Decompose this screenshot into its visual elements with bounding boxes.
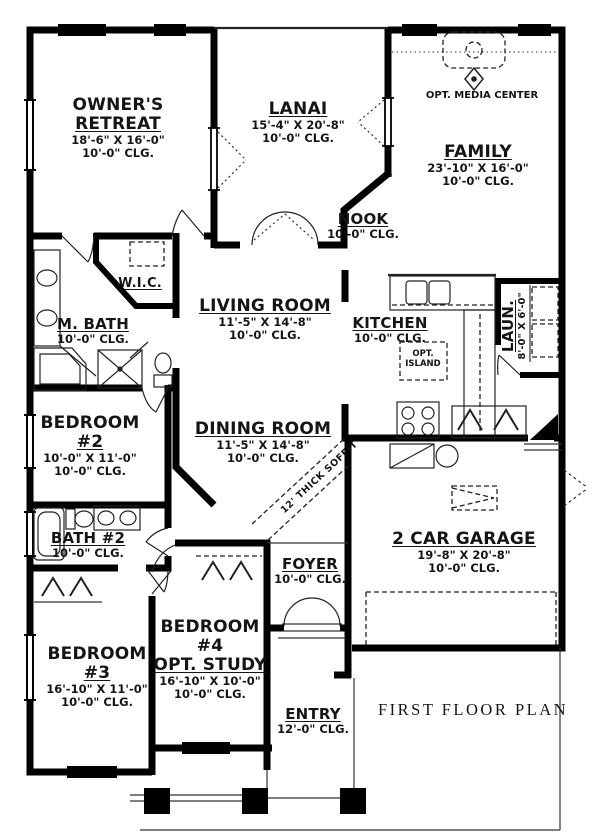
garage-workbench-diagonal bbox=[390, 444, 434, 468]
room-name: 2 CAR GARAGE bbox=[392, 530, 536, 549]
door-bedroom2 bbox=[142, 388, 168, 412]
room-label-lanai: LANAI 15'-4" X 20'-8" 10'-0" CLG. bbox=[251, 100, 344, 145]
opt-media-center-tv bbox=[466, 42, 482, 58]
window-bedroom2-left bbox=[24, 415, 36, 468]
room-ceiling: 10'-0" CLG. bbox=[427, 175, 528, 188]
room-name: OWNER'S bbox=[71, 96, 164, 115]
porch-column-2 bbox=[242, 788, 268, 814]
room-name: KITCHEN bbox=[352, 315, 427, 332]
slider-swing-dotted-owners bbox=[218, 132, 246, 188]
room-name: BEDROOM bbox=[41, 414, 140, 433]
wic-shelf-dashed bbox=[130, 242, 164, 266]
attic-access-box bbox=[452, 486, 497, 510]
room-name: ENTRY bbox=[277, 706, 349, 723]
room-label-m-bath: M. BATH 10'-0" CLG. bbox=[57, 316, 129, 346]
mbath-counter-angle bbox=[60, 346, 96, 376]
room-label-wic: W.I.C. bbox=[118, 277, 162, 292]
stove-burner-4 bbox=[422, 423, 434, 435]
room-ceiling: 10'-0" CLG. bbox=[41, 465, 140, 478]
floor-plan: OWNER'S RETREAT 18'-6" X 16'-0" 10'-0" C… bbox=[0, 0, 600, 838]
door-garage-leaf bbox=[530, 414, 558, 440]
stove-burner-1 bbox=[402, 407, 414, 419]
front-door-sill bbox=[278, 624, 346, 638]
mbath-sink-2 bbox=[37, 310, 57, 326]
room-name: BATH #2 bbox=[51, 530, 125, 547]
room-name: FAMILY bbox=[427, 143, 528, 162]
room-ceiling: 10'-0" CLG. bbox=[51, 547, 125, 560]
slider-family-to-lanai bbox=[382, 98, 394, 146]
bath2-sink-2 bbox=[120, 511, 136, 525]
room-name: NOOK bbox=[327, 211, 399, 228]
door-lanai-double bbox=[252, 212, 318, 245]
room-name: BEDROOM bbox=[46, 645, 147, 664]
room-name: LIVING ROOM bbox=[199, 297, 331, 316]
room-label-bedroom3: BEDROOM #3 16'-10" X 11'-0" 10'-0" CLG. bbox=[46, 645, 147, 709]
opt-media-center-label: OPT. MEDIA CENTER bbox=[426, 90, 538, 101]
room-ceiling: 10'-0" CLG. bbox=[46, 696, 147, 709]
opt-island-line2: ISLAND bbox=[405, 360, 440, 370]
room-label-owners-retreat: OWNER'S RETREAT 18'-6" X 16'-0" 10'-0" C… bbox=[71, 96, 164, 160]
window-bedroom3-left bbox=[24, 635, 36, 700]
bath2-sink-1 bbox=[98, 511, 114, 525]
room-ceiling: 10'-0" CLG. bbox=[71, 147, 164, 160]
room-label-entry: ENTRY 12'-0" CLG. bbox=[277, 706, 349, 736]
bath2-vanity bbox=[94, 506, 140, 530]
media-center-icon-dot bbox=[472, 77, 476, 81]
room-name: LAUN. bbox=[500, 292, 517, 359]
room-name: BEDROOM bbox=[153, 618, 266, 637]
porch-column-1 bbox=[144, 788, 170, 814]
slider-swing-dotted-family bbox=[358, 100, 384, 146]
door-front-double bbox=[284, 598, 340, 626]
window-family-top-1 bbox=[402, 24, 437, 36]
bedroom3-closet-chevrons bbox=[42, 578, 92, 596]
bath2-toilet-bowl bbox=[75, 511, 93, 527]
room-dims: 23'-10" X 16'-0" bbox=[427, 162, 528, 175]
room-name: W.I.C. bbox=[118, 277, 162, 292]
room-label-laundry: LAUN. 8'-0" X 6'-0" bbox=[500, 292, 528, 359]
room-dims: 11'-5" X 14'-8" bbox=[199, 316, 331, 329]
room-name: FOYER bbox=[274, 556, 346, 573]
room-dims: 15'-4" X 20'-8" bbox=[251, 119, 344, 132]
room-ceiling: 10'-0" CLG. bbox=[199, 329, 331, 342]
room-label-family: FAMILY 23'-10" X 16'-0" 10'-0" CLG. bbox=[427, 143, 528, 188]
opt-island-label: OPT. ISLAND bbox=[405, 350, 440, 370]
room-name: OPT. STUDY bbox=[153, 656, 266, 675]
room-ceiling: 10'-0" CLG. bbox=[153, 688, 266, 701]
attic-access-arrow bbox=[452, 488, 494, 508]
window-owners-left bbox=[24, 100, 36, 170]
room-label-living-room: LIVING ROOM 11'-5" X 14'-8" 10'-0" CLG. bbox=[199, 297, 331, 342]
room-label-dining-room: DINING ROOM 11'-5" X 14'-8" 10'-0" CLG. bbox=[195, 420, 331, 465]
room-label-bath2: BATH #2 10'-0" CLG. bbox=[51, 530, 125, 560]
room-name: M. BATH bbox=[57, 316, 129, 333]
room-label-foyer: FOYER 10'-0" CLG. bbox=[274, 556, 346, 586]
door-owners-retreat bbox=[172, 210, 204, 236]
stove-burner-3 bbox=[402, 423, 414, 435]
garage-door-sill bbox=[524, 444, 562, 450]
porch-column-3 bbox=[340, 788, 366, 814]
room-ceiling: 10'-0" CLG. bbox=[352, 332, 427, 345]
room-label-garage: 2 CAR GARAGE 19'-8" X 20'-8" 10'-0" CLG. bbox=[392, 530, 536, 575]
room-dims: 10'-0" X 11'-0" bbox=[41, 452, 140, 465]
mbath-sink-1 bbox=[37, 270, 57, 286]
side-window-dashed bbox=[564, 470, 588, 506]
window-bedroom3 bbox=[67, 766, 117, 778]
water-heater bbox=[436, 445, 458, 467]
slider-owners-to-lanai bbox=[208, 128, 220, 190]
washer-dashed bbox=[532, 287, 558, 320]
room-name: RETREAT bbox=[71, 115, 164, 134]
pantry-shelf-chevrons bbox=[458, 410, 518, 430]
room-dims: 18'-6" X 16'-0" bbox=[71, 134, 164, 147]
room-name: DINING ROOM bbox=[195, 420, 331, 439]
door-master-bath bbox=[62, 236, 94, 262]
room-label-kitchen: KITCHEN 10'-0" CLG. bbox=[352, 315, 427, 345]
room-dims: 19'-8" X 20'-8" bbox=[392, 549, 536, 562]
mbath-tub-inner bbox=[40, 354, 80, 384]
lanai-door-dotted bbox=[254, 214, 314, 240]
mbath-shower-drain bbox=[118, 367, 122, 371]
window-family-top-2 bbox=[518, 24, 551, 36]
bath2-toilet-tank bbox=[66, 509, 75, 529]
plan-title: FIRST FLOOR PLAN bbox=[378, 700, 568, 720]
room-ceiling: 12'-0" CLG. bbox=[277, 723, 349, 736]
room-name: #3 bbox=[46, 664, 147, 683]
room-label-nook: NOOK 10'-0" CLG. bbox=[327, 211, 399, 241]
bedroom4-closet-chevrons bbox=[202, 562, 252, 580]
stove-burner-2 bbox=[422, 407, 434, 419]
room-ceiling: 10'-0" CLG. bbox=[392, 562, 536, 575]
room-name: LANAI bbox=[251, 100, 344, 119]
mbath-toilet-bowl bbox=[155, 353, 171, 373]
kitchen-sink-left bbox=[406, 281, 427, 304]
room-label-bedroom2: BEDROOM #2 10'-0" X 11'-0" 10'-0" CLG. bbox=[41, 414, 140, 478]
room-dims: 16'-10" X 11'-0" bbox=[46, 683, 147, 696]
room-name: #2 bbox=[41, 433, 140, 452]
room-ceiling: 10'-0" CLG. bbox=[57, 333, 129, 346]
room-ceiling: 10'-0" CLG. bbox=[251, 132, 344, 145]
opt-media-center-niche bbox=[443, 32, 505, 68]
room-ceiling: 10'-0" CLG. bbox=[274, 573, 346, 586]
room-ceiling: 10'-0" CLG. bbox=[195, 452, 331, 465]
window-owners-top-2 bbox=[154, 24, 186, 36]
room-dims: 8'-0" X 6'-0" bbox=[517, 292, 528, 359]
room-ceiling: 10'-0" CLG. bbox=[327, 228, 399, 241]
room-dims: 11'-5" X 14'-8" bbox=[195, 439, 331, 452]
garage-door-dashed bbox=[366, 592, 556, 646]
window-bedroom4 bbox=[182, 742, 230, 754]
room-name: #4 bbox=[153, 637, 266, 656]
dryer-dashed bbox=[532, 324, 558, 357]
window-owners-top-1 bbox=[58, 24, 106, 36]
room-label-bedroom4: BEDROOM #4 OPT. STUDY 16'-10" X 10'-0" 1… bbox=[153, 618, 266, 701]
kitchen-sink-right bbox=[429, 281, 450, 304]
